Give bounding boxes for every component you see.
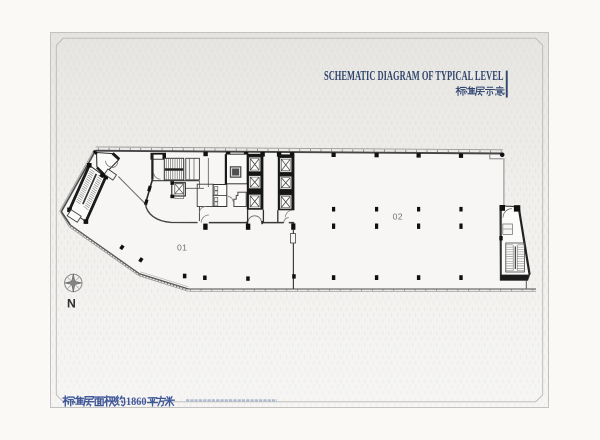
svg-text:1860: 1860 xyxy=(126,396,147,408)
svg-text:01: 01 xyxy=(177,243,187,253)
svg-text:SCHEMATIC DIAGRAM OF TYPICAL L: SCHEMATIC DIAGRAM OF TYPICAL LEVEL xyxy=(324,68,504,83)
svg-text:N: N xyxy=(67,296,76,310)
svg-text:02: 02 xyxy=(393,212,403,222)
